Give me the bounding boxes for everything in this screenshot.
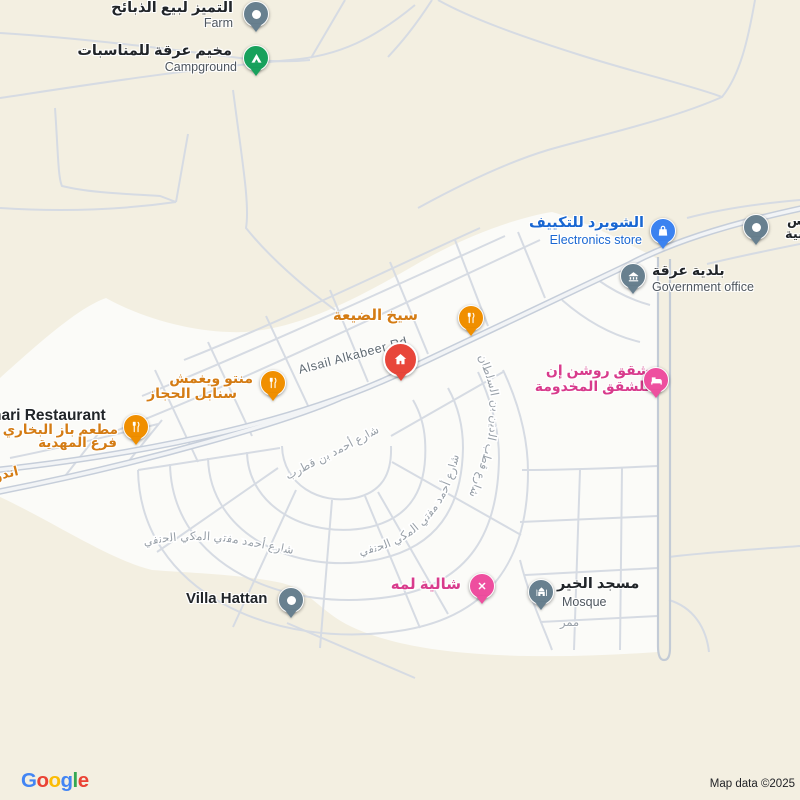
poi-label-roshan-line2[interactable]: للشقق المخدومة	[535, 379, 650, 394]
map-attribution: Map data ©2025	[710, 778, 795, 790]
villa-hattan-pin[interactable]	[278, 587, 304, 613]
poi-label-bukhari-ar2[interactable]: فرع المهدية	[38, 436, 117, 451]
poi-label-mosque-en[interactable]: Mosque	[562, 596, 606, 610]
unnamed-place-pin[interactable]	[743, 214, 769, 240]
bed-icon	[649, 373, 664, 388]
house-icon	[391, 350, 410, 369]
fork-knife-icon	[129, 420, 143, 434]
google-logo-letter: e	[78, 769, 89, 792]
farm-pin[interactable]	[243, 1, 269, 27]
google-logo-letter: g	[61, 769, 73, 792]
hotel-pin-roshan[interactable]	[643, 367, 669, 393]
street-label-mamarr: ممر	[560, 617, 579, 630]
poi-label-seekh[interactable]: سيخ الضيعة	[333, 308, 418, 325]
poi-label-government-ar[interactable]: بلدية عرقة	[652, 263, 725, 278]
poi-label-manto-line2[interactable]: سنابل الحجاز	[147, 386, 237, 401]
bank-icon	[626, 269, 641, 284]
google-logo-letter: o	[36, 769, 48, 792]
mosque-pin[interactable]	[528, 579, 554, 605]
poi-label-roshan-line1[interactable]: شقق روشن إن	[546, 363, 650, 378]
mosque-icon	[534, 585, 549, 600]
chalet-pin[interactable]	[469, 573, 495, 599]
google-logo-letter: o	[48, 769, 60, 792]
poi-label-farm-en[interactable]: Farm	[204, 17, 233, 31]
fork-knife-icon	[464, 311, 478, 325]
tent-icon	[249, 51, 264, 66]
restaurant-pin-bukhari[interactable]	[123, 414, 149, 440]
restaurant-pin-manto[interactable]	[260, 370, 286, 396]
shopping-bag-icon	[656, 224, 670, 238]
restaurant-pin-seekh[interactable]	[458, 305, 484, 331]
poi-label-electronics-ar[interactable]: الشويرد للتكييف	[529, 216, 644, 232]
poi-label-farm-ar[interactable]: التميز لبيع الذبائح	[111, 1, 233, 17]
poi-label-mosque-ar[interactable]: مسجد الخير	[557, 577, 639, 593]
electronics-store-pin[interactable]	[650, 218, 676, 244]
poi-label-campground-en[interactable]: Campground	[165, 61, 237, 75]
map-canvas[interactable]: شارع أحمد بن قطرب شارع أحمد مفتي المكي ا…	[0, 0, 800, 800]
poi-label-electronics-en[interactable]: Electronics store	[550, 234, 642, 248]
home-location-pin[interactable]	[383, 342, 418, 377]
poi-label-government-en[interactable]: Government office	[652, 281, 754, 295]
poi-label-chalet[interactable]: شالية لمه	[391, 577, 461, 594]
campground-pin[interactable]	[243, 45, 269, 71]
poi-label-clipped-line2[interactable]: سية	[785, 227, 800, 241]
poi-label-campground-ar[interactable]: مخيم عرقة للمناسبات	[77, 44, 232, 60]
map-roads-layer: شارع أحمد بن قطرب شارع أحمد مفتي المكي ا…	[0, 0, 800, 800]
google-logo-letter: G	[21, 769, 36, 792]
google-logo[interactable]: Google	[21, 769, 89, 793]
government-office-pin[interactable]	[620, 263, 646, 289]
poi-label-villa[interactable]: Villa Hattan	[186, 591, 267, 608]
crossed-tools-icon	[475, 579, 489, 593]
fork-knife-icon	[266, 376, 280, 390]
